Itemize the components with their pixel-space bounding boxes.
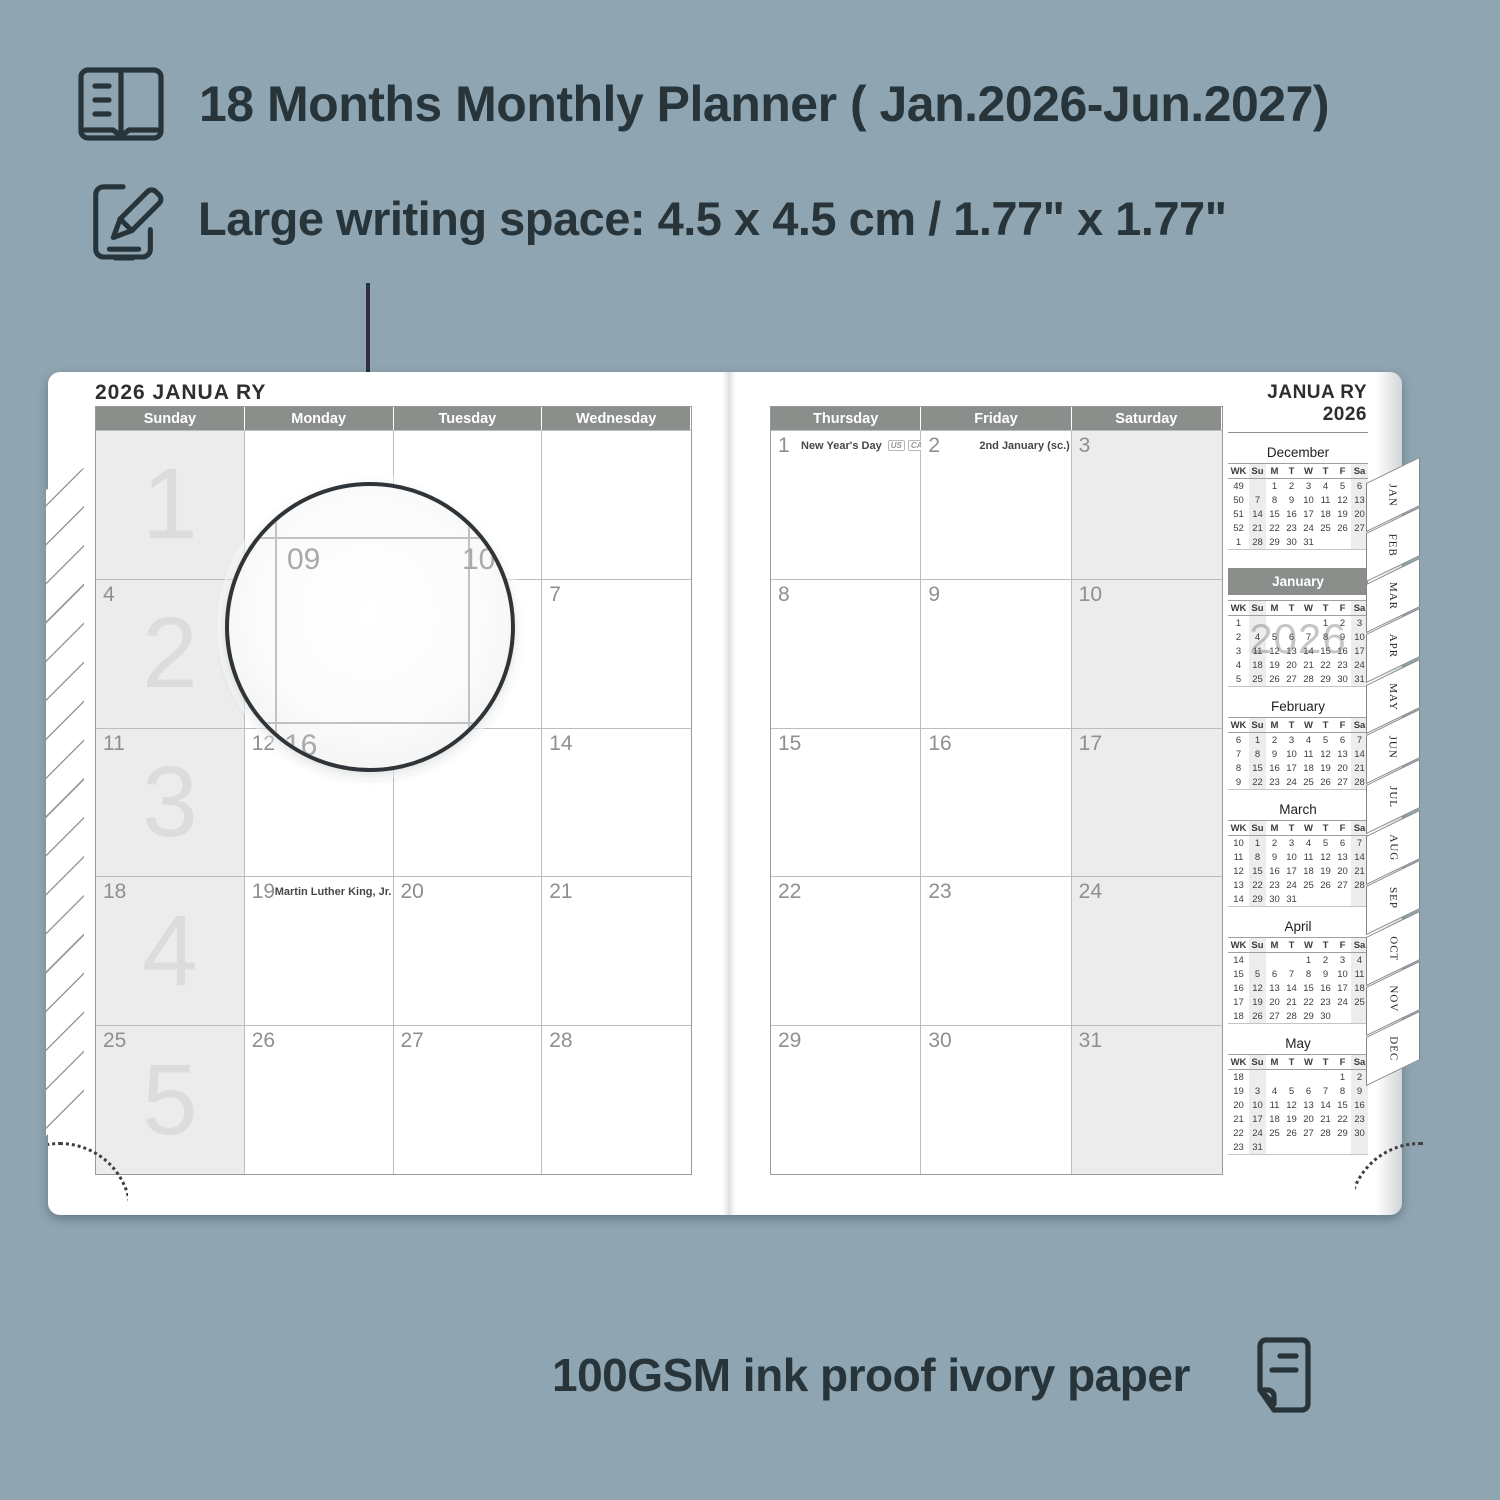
day-cell: 28 xyxy=(542,1025,691,1174)
mini-week-number: 2 xyxy=(1228,630,1249,644)
mini-date: 21 xyxy=(1249,521,1266,535)
date-number: 1 xyxy=(778,434,790,458)
date-number: 28 xyxy=(549,1029,572,1053)
mini-month-grid: WKSuMTWTFSa11232456789103111213141516174… xyxy=(1228,600,1368,687)
mini-date: 26 xyxy=(1266,672,1283,686)
mini-date: 10 xyxy=(1283,747,1300,761)
mini-month-grid: WKSuMTWTFSa14123415567891011161213141516… xyxy=(1228,937,1368,1024)
mini-date: 13 xyxy=(1334,747,1351,761)
mini-date: 19 xyxy=(1317,761,1334,775)
mini-month-grid: WKSuMTWTFSa10123456711891011121314121516… xyxy=(1228,820,1368,907)
mini-day-header: T xyxy=(1317,937,1334,953)
mini-date: 31 xyxy=(1300,535,1317,549)
left-page-title: 2026 JANUA RY xyxy=(95,381,266,405)
mini-date: 6 xyxy=(1266,967,1283,981)
mini-date: 27 xyxy=(1300,1126,1317,1140)
date-number: 26 xyxy=(252,1029,275,1053)
mini-date: 15 xyxy=(1300,981,1317,995)
mini-date: 21 xyxy=(1317,1112,1334,1126)
mini-date: 15 xyxy=(1334,1098,1351,1112)
mini-month-february: FebruaryWKSuMTWTFSa612345677891011121314… xyxy=(1228,699,1368,790)
mini-date: 11 xyxy=(1249,644,1266,658)
mini-day-header: Sa xyxy=(1351,463,1368,479)
mini-date: 30 xyxy=(1266,892,1283,906)
mini-date xyxy=(1249,953,1266,967)
mini-day-header: M xyxy=(1266,600,1283,616)
mini-date: 23 xyxy=(1351,1112,1368,1126)
mini-day-header: W xyxy=(1300,937,1317,953)
mini-date: 19 xyxy=(1317,864,1334,878)
mini-date: 27 xyxy=(1266,1009,1283,1023)
day-header: Wednesday xyxy=(542,407,691,430)
mini-date: 2 xyxy=(1317,953,1334,967)
mini-date: 13 xyxy=(1283,644,1300,658)
feature-months: 18 Months Monthly Planner ( Jan.2026-Jun… xyxy=(75,64,1329,144)
mini-date: 5 xyxy=(1266,630,1283,644)
mini-week-number: 52 xyxy=(1228,521,1249,535)
mini-date: 23 xyxy=(1266,775,1283,789)
mini-date: 14 xyxy=(1249,507,1266,521)
mini-date xyxy=(1334,535,1351,549)
mini-date: 26 xyxy=(1317,878,1334,892)
day-cell: 3 xyxy=(1072,430,1222,579)
day-cell: 14 xyxy=(542,728,691,877)
magnifier-gridline xyxy=(229,722,511,724)
date-number: 10 xyxy=(1079,583,1102,607)
mini-day-header: Su xyxy=(1249,937,1266,953)
date-number: 20 xyxy=(401,880,424,904)
month-tab-label: SEP xyxy=(1387,887,1399,909)
mini-date: 20 xyxy=(1300,1112,1317,1126)
mini-date: 20 xyxy=(1334,864,1351,878)
date-number: 16 xyxy=(928,732,951,756)
mini-date: 8 xyxy=(1249,850,1266,864)
mini-day-header: WK xyxy=(1228,463,1249,479)
day-cell: 15 xyxy=(771,728,921,877)
mini-day-header: T xyxy=(1283,1054,1300,1070)
mini-date: 25 xyxy=(1249,672,1266,686)
mini-day-header: W xyxy=(1300,717,1317,733)
mini-date: 25 xyxy=(1266,1126,1283,1140)
mini-date: 18 xyxy=(1300,761,1317,775)
date-number: 24 xyxy=(1079,880,1102,904)
mini-date: 30 xyxy=(1334,672,1351,686)
mini-date: 3 xyxy=(1334,953,1351,967)
mini-week-number: 1 xyxy=(1228,535,1249,549)
date-number: 2 xyxy=(928,434,940,458)
mini-date: 31 xyxy=(1249,1140,1266,1154)
mini-month-name: March xyxy=(1228,802,1368,817)
mini-date xyxy=(1334,1140,1351,1154)
mini-date: 11 xyxy=(1300,850,1317,864)
mini-date: 2 xyxy=(1283,479,1300,493)
mini-month-january: JanuaryWKSuMTWTFSa1123245678910311121314… xyxy=(1228,568,1368,687)
mini-date xyxy=(1300,892,1317,906)
mini-date: 19 xyxy=(1266,658,1283,672)
mini-date xyxy=(1317,892,1334,906)
day-cell: 17 xyxy=(1072,728,1222,877)
mini-date: 23 xyxy=(1334,658,1351,672)
mini-date: 6 xyxy=(1334,836,1351,850)
mini-month-grid: WKSuMTWTFSa18121934567892010111213141516… xyxy=(1228,1054,1368,1155)
mini-date: 23 xyxy=(1317,995,1334,1009)
mini-week-number: 11 xyxy=(1228,850,1249,864)
day-cell: 27 xyxy=(394,1025,543,1174)
mini-date: 10 xyxy=(1249,1098,1266,1112)
mini-date xyxy=(1300,1140,1317,1154)
mini-date: 26 xyxy=(1317,775,1334,789)
mini-date: 28 xyxy=(1317,1126,1334,1140)
mini-date: 12 xyxy=(1266,644,1283,658)
mini-week-number: 6 xyxy=(1228,733,1249,747)
date-number: 27 xyxy=(401,1029,424,1053)
mini-day-header: Su xyxy=(1249,820,1266,836)
mini-date: 17 xyxy=(1249,1112,1266,1126)
date-number: 29 xyxy=(778,1029,801,1053)
mini-date: 12 xyxy=(1334,493,1351,507)
mini-date: 9 xyxy=(1266,747,1283,761)
mini-date xyxy=(1249,1070,1266,1084)
month-tab-label: JUL xyxy=(1387,786,1399,808)
mini-date: 24 xyxy=(1283,878,1300,892)
mini-date xyxy=(1266,1140,1283,1154)
mini-day-header: W xyxy=(1300,463,1317,479)
day-cell: 30 xyxy=(921,1025,1071,1174)
mini-date: 27 xyxy=(1334,775,1351,789)
mini-day-header: F xyxy=(1334,937,1351,953)
mini-date: 13 xyxy=(1334,850,1351,864)
mini-date: 17 xyxy=(1283,761,1300,775)
mini-date: 26 xyxy=(1283,1126,1300,1140)
right-month-grid: ThursdayFridaySaturday1New Year's Day US… xyxy=(770,406,1223,1175)
month-tab-label: OCT xyxy=(1387,936,1399,961)
mini-date: 1 xyxy=(1300,953,1317,967)
mini-date: 8 xyxy=(1334,1084,1351,1098)
magnifier-gridline xyxy=(275,486,277,768)
mini-week-number: 50 xyxy=(1228,493,1249,507)
mini-date: 14 xyxy=(1283,981,1300,995)
mini-week-number: 10 xyxy=(1228,836,1249,850)
date-number: 21 xyxy=(549,880,572,904)
mini-week-number: 17 xyxy=(1228,995,1249,1009)
day-cell: 22 xyxy=(771,876,921,1025)
day-cell: 42 xyxy=(96,579,245,728)
mini-day-header: W xyxy=(1300,1054,1317,1070)
mini-day-header: M xyxy=(1266,820,1283,836)
day-cell xyxy=(542,430,691,579)
mini-date xyxy=(1266,616,1283,630)
mini-date: 6 xyxy=(1300,1084,1317,1098)
mini-date: 25 xyxy=(1300,775,1317,789)
mini-date: 8 xyxy=(1317,630,1334,644)
week-number: 4 xyxy=(96,877,244,1025)
mini-date: 18 xyxy=(1266,1112,1283,1126)
mini-date: 27 xyxy=(1334,878,1351,892)
feature-months-label: 18 Months Monthly Planner ( Jan.2026-Jun… xyxy=(199,75,1329,133)
mini-date: 5 xyxy=(1249,967,1266,981)
mini-months: DecemberWKSuMTWTFSa491234565078910111213… xyxy=(1228,445,1368,1155)
feature-paper: 100GSM ink proof ivory paper xyxy=(552,1332,1328,1418)
mini-date: 4 xyxy=(1300,836,1317,850)
mini-day-header: WK xyxy=(1228,1054,1249,1070)
mini-date: 19 xyxy=(1249,995,1266,1009)
mini-week-number: 14 xyxy=(1228,953,1249,967)
date-number: 30 xyxy=(928,1029,951,1053)
mini-date: 9 xyxy=(1266,850,1283,864)
mini-date: 24 xyxy=(1249,1126,1266,1140)
mini-date: 16 xyxy=(1334,644,1351,658)
mini-day-header: F xyxy=(1334,820,1351,836)
date-number: 8 xyxy=(778,583,790,607)
mini-day-header: M xyxy=(1266,1054,1283,1070)
mini-date xyxy=(1334,1009,1351,1023)
mini-date: 15 xyxy=(1249,761,1266,775)
mini-date: 14 xyxy=(1300,644,1317,658)
month-tab-label: AUG xyxy=(1387,834,1399,861)
mini-date: 18 xyxy=(1317,507,1334,521)
mini-week-number: 18 xyxy=(1228,1009,1249,1023)
mini-date xyxy=(1283,953,1300,967)
day-cell: 113 xyxy=(96,728,245,877)
mini-week-number: 49 xyxy=(1228,479,1249,493)
mini-date: 3 xyxy=(1283,836,1300,850)
mini-date: 22 xyxy=(1249,878,1266,892)
mini-week-number: 3 xyxy=(1228,644,1249,658)
feature-writing-space: Large writing space: 4.5 x 4.5 cm / 1.77… xyxy=(86,170,1226,266)
mini-date: 14 xyxy=(1317,1098,1334,1112)
mini-week-number: 1 xyxy=(1228,616,1249,630)
mini-date: 15 xyxy=(1249,864,1266,878)
mini-date: 24 xyxy=(1300,521,1317,535)
mini-date xyxy=(1266,1070,1283,1084)
feature-paper-label: 100GSM ink proof ivory paper xyxy=(552,1348,1190,1402)
mini-date: 17 xyxy=(1334,981,1351,995)
date-number: 15 xyxy=(778,732,801,756)
mini-date: 16 xyxy=(1283,507,1300,521)
mini-week-number: 8 xyxy=(1228,761,1249,775)
mini-day-header: M xyxy=(1266,717,1283,733)
mini-day-header: WK xyxy=(1228,820,1249,836)
magnified-date: 16 xyxy=(284,729,317,763)
month-tab-label: FEB xyxy=(1387,533,1399,556)
mini-date: 2 xyxy=(1266,733,1283,747)
mini-date: 5 xyxy=(1283,1084,1300,1098)
day-header: Monday xyxy=(245,407,394,430)
date-number: 19 xyxy=(252,880,275,904)
mini-date: 13 xyxy=(1300,1098,1317,1112)
mini-date xyxy=(1317,1140,1334,1154)
mini-week-number: 20 xyxy=(1228,1098,1249,1112)
mini-date: 5 xyxy=(1317,733,1334,747)
mini-date: 8 xyxy=(1300,967,1317,981)
product-image: 18 Months Monthly Planner ( Jan.2026-Jun… xyxy=(0,0,1500,1500)
mini-date: 18 xyxy=(1300,864,1317,878)
day-cell: 1New Year's Day USCAUKIE xyxy=(771,430,921,579)
mini-date: 15 xyxy=(1266,507,1283,521)
mini-day-header: T xyxy=(1317,717,1334,733)
date-number: 12 xyxy=(252,732,275,756)
mini-date: 19 xyxy=(1283,1112,1300,1126)
mini-date: 11 xyxy=(1266,1098,1283,1112)
month-tab-label: MAY xyxy=(1387,682,1399,710)
mini-day-header: T xyxy=(1283,937,1300,953)
mini-week-number: 21 xyxy=(1228,1112,1249,1126)
corner-stitch-left xyxy=(48,1142,128,1215)
day-cell: 184 xyxy=(96,876,245,1025)
mini-date: 16 xyxy=(1266,761,1283,775)
mini-date: 13 xyxy=(1266,981,1283,995)
mini-week-number: 5 xyxy=(1228,672,1249,686)
mini-date: 21 xyxy=(1283,995,1300,1009)
day-cell: 10 xyxy=(1072,579,1222,728)
reference-sidebar: JANUA RY 2026 DecemberWKSuMTWTFSa4912345… xyxy=(1228,382,1368,1155)
mini-date: 21 xyxy=(1300,658,1317,672)
mini-date: 26 xyxy=(1334,521,1351,535)
mini-day-header: WK xyxy=(1228,600,1249,616)
mini-day-header: T xyxy=(1317,463,1334,479)
mini-date: 3 xyxy=(1300,479,1317,493)
open-planner-icon xyxy=(75,64,167,144)
mini-date: 29 xyxy=(1300,1009,1317,1023)
mini-date xyxy=(1334,892,1351,906)
mini-day-header: WK xyxy=(1228,717,1249,733)
mini-date: 11 xyxy=(1317,493,1334,507)
week-number: 2 xyxy=(96,580,244,728)
day-header: Friday xyxy=(921,407,1071,430)
mini-date: 25 xyxy=(1300,878,1317,892)
mini-date: 20 xyxy=(1334,761,1351,775)
mini-day-header: T xyxy=(1283,717,1300,733)
mini-date: 27 xyxy=(1283,672,1300,686)
magnifier-gridline xyxy=(229,537,511,539)
mini-date: 29 xyxy=(1249,892,1266,906)
mini-day-header: Su xyxy=(1249,463,1266,479)
month-tab-label: APR xyxy=(1387,633,1399,657)
mini-date: 3 xyxy=(1283,733,1300,747)
mini-date: 9 xyxy=(1317,967,1334,981)
mini-day-header: F xyxy=(1334,717,1351,733)
day-header: Tuesday xyxy=(394,407,543,430)
day-cell: 9 xyxy=(921,579,1071,728)
mini-date: 1 xyxy=(1266,479,1283,493)
mini-date: 9 xyxy=(1334,630,1351,644)
day-cell: 21 xyxy=(542,876,691,1025)
day-cell: 31 xyxy=(1072,1025,1222,1174)
mini-day-header: T xyxy=(1283,600,1300,616)
mini-date: 5 xyxy=(1334,479,1351,493)
month-tab-label: JAN xyxy=(1387,483,1399,506)
mini-date: 19 xyxy=(1334,507,1351,521)
mini-date: 11 xyxy=(1300,747,1317,761)
date-number: 9 xyxy=(928,583,940,607)
mini-day-header: T xyxy=(1317,1054,1334,1070)
mini-date: 24 xyxy=(1283,775,1300,789)
day-header: Sunday xyxy=(96,407,245,430)
day-cell: 7 xyxy=(542,579,691,728)
date-number: 3 xyxy=(1079,434,1091,458)
mini-month-name: December xyxy=(1228,445,1368,460)
mini-date: 6 xyxy=(1283,630,1300,644)
feature-writing-space-label: Large writing space: 4.5 x 4.5 cm / 1.77… xyxy=(198,191,1226,246)
mini-week-number: 7 xyxy=(1228,747,1249,761)
mini-month-name: February xyxy=(1228,699,1368,714)
day-cell: 1 xyxy=(96,430,245,579)
mini-day-header: T xyxy=(1283,463,1300,479)
mini-date xyxy=(1300,616,1317,630)
mini-date: 17 xyxy=(1300,507,1317,521)
mini-month-december: DecemberWKSuMTWTFSa491234565078910111213… xyxy=(1228,445,1368,550)
mini-date: 7 xyxy=(1283,967,1300,981)
date-number: 23 xyxy=(928,880,951,904)
mini-month-march: MarchWKSuMTWTFSa101234567118910111213141… xyxy=(1228,802,1368,907)
day-cell: 29 xyxy=(771,1025,921,1174)
mini-date: 25 xyxy=(1317,521,1334,535)
mini-date: 30 xyxy=(1317,1009,1334,1023)
date-number: 22 xyxy=(778,880,801,904)
mini-date: 1 xyxy=(1249,836,1266,850)
mini-date: 16 xyxy=(1351,1098,1368,1112)
mini-date: 28 xyxy=(1249,535,1266,549)
mini-day-header: T xyxy=(1283,820,1300,836)
mini-month-name: April xyxy=(1228,919,1368,934)
mini-month-grid: WKSuMTWTFSa49123456507891011121351141516… xyxy=(1228,463,1368,550)
mini-date: 3 xyxy=(1249,1084,1266,1098)
mini-date: 30 xyxy=(1283,535,1300,549)
mini-date: 2 xyxy=(1334,616,1351,630)
date-number: 31 xyxy=(1079,1029,1102,1053)
mini-date: 28 xyxy=(1283,1009,1300,1023)
day-cell: 19Martin Luther King, Jr. Day US xyxy=(245,876,394,1025)
mini-date: 23 xyxy=(1283,521,1300,535)
mini-day-header: W xyxy=(1300,820,1317,836)
mini-week-number: 18 xyxy=(1228,1070,1249,1084)
mini-day-header: Su xyxy=(1249,600,1266,616)
paper-sheet-icon xyxy=(1240,1332,1328,1418)
mini-date xyxy=(1283,1070,1300,1084)
mini-date: 31 xyxy=(1283,892,1300,906)
mini-week-number: 12 xyxy=(1228,864,1249,878)
mini-date: 17 xyxy=(1283,864,1300,878)
mini-date: 23 xyxy=(1266,878,1283,892)
mini-day-header: M xyxy=(1266,463,1283,479)
mini-date: 16 xyxy=(1266,864,1283,878)
mini-day-header: T xyxy=(1317,600,1334,616)
page-edge-hatch xyxy=(46,468,84,1158)
magnified-date: 09 xyxy=(287,543,320,577)
book-spine xyxy=(722,372,736,1215)
mini-date xyxy=(1266,953,1283,967)
planner-spread: 2026 JANUA RY SundayMondayTuesdayWednesd… xyxy=(48,372,1402,1215)
mini-date: 8 xyxy=(1249,747,1266,761)
day-cell: 23 xyxy=(921,876,1071,1025)
magnified-date: 10 xyxy=(462,543,495,577)
mini-date: 12 xyxy=(1317,850,1334,864)
magnifier-circle: 09 10 16 xyxy=(225,482,515,772)
mini-date xyxy=(1317,535,1334,549)
pencil-note-icon xyxy=(86,170,164,266)
mini-day-header: M xyxy=(1266,937,1283,953)
magnifier-gridline xyxy=(468,486,470,768)
mini-date xyxy=(1249,616,1266,630)
day-header: Thursday xyxy=(771,407,921,430)
day-cell: 24 xyxy=(1072,876,1222,1025)
day-cell: 26 xyxy=(245,1025,394,1174)
mini-date: 10 xyxy=(1300,493,1317,507)
mini-date: 12 xyxy=(1317,747,1334,761)
mini-date: 4 xyxy=(1300,733,1317,747)
mini-week-number: 13 xyxy=(1228,878,1249,892)
mini-month-name: May xyxy=(1228,1036,1368,1051)
